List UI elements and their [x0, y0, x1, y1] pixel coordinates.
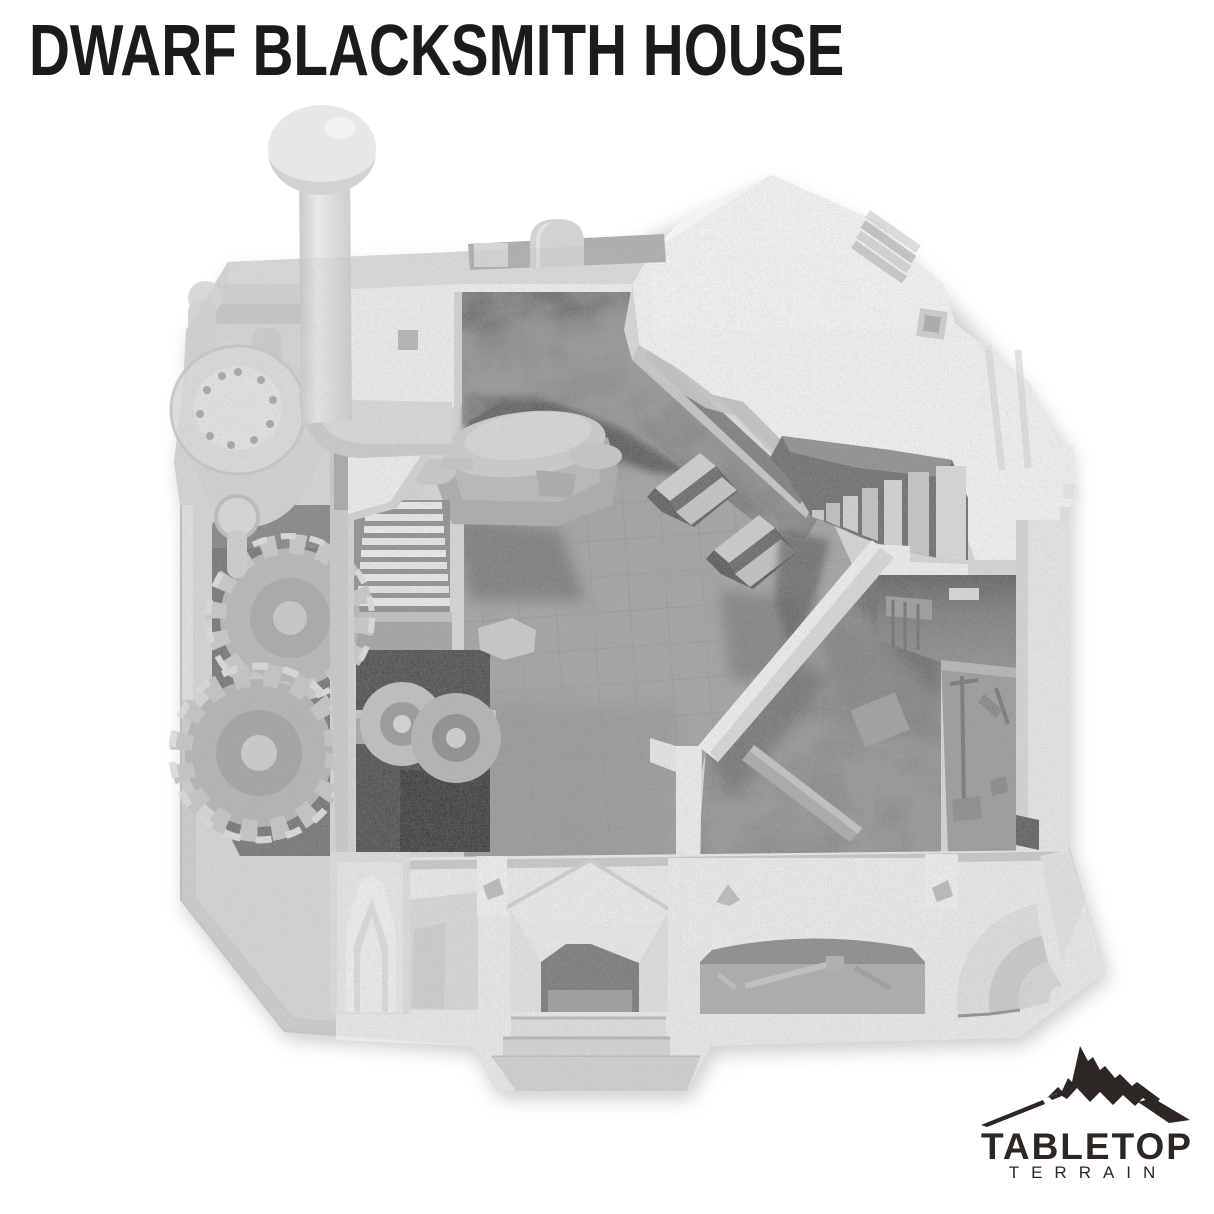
svg-text:TERRAIN: TERRAIN — [1009, 1163, 1168, 1182]
svg-text:TABLETOP: TABLETOP — [981, 1126, 1193, 1167]
